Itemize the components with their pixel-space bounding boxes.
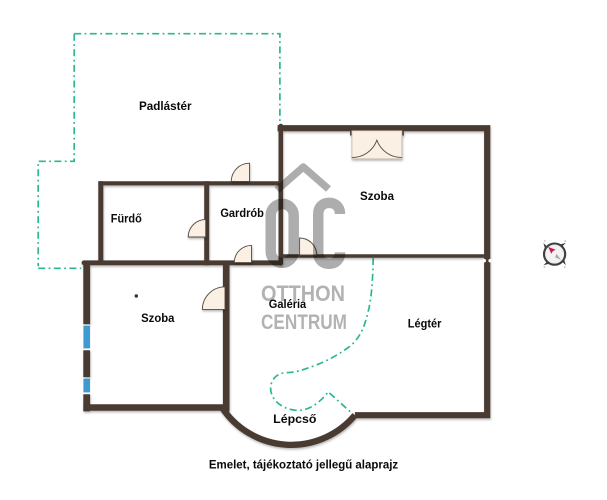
svg-text:Galéria: Galéria [269,299,307,311]
svg-text:Lépcső: Lépcső [273,414,316,426]
svg-text:Szoba: Szoba [141,313,175,325]
svg-text:Emelet, tájékoztató jellegű al: Emelet, tájékoztató jellegű alaprajz [209,460,399,472]
svg-text:Padlástér: Padlástér [139,101,192,113]
svg-text:Gardrób: Gardrób [220,208,264,220]
svg-text:Fürdő: Fürdő [111,213,142,225]
svg-text:Szoba: Szoba [360,191,395,203]
svg-text:CENTRUM: CENTRUM [261,310,347,334]
svg-text:Légtér: Légtér [408,319,442,331]
